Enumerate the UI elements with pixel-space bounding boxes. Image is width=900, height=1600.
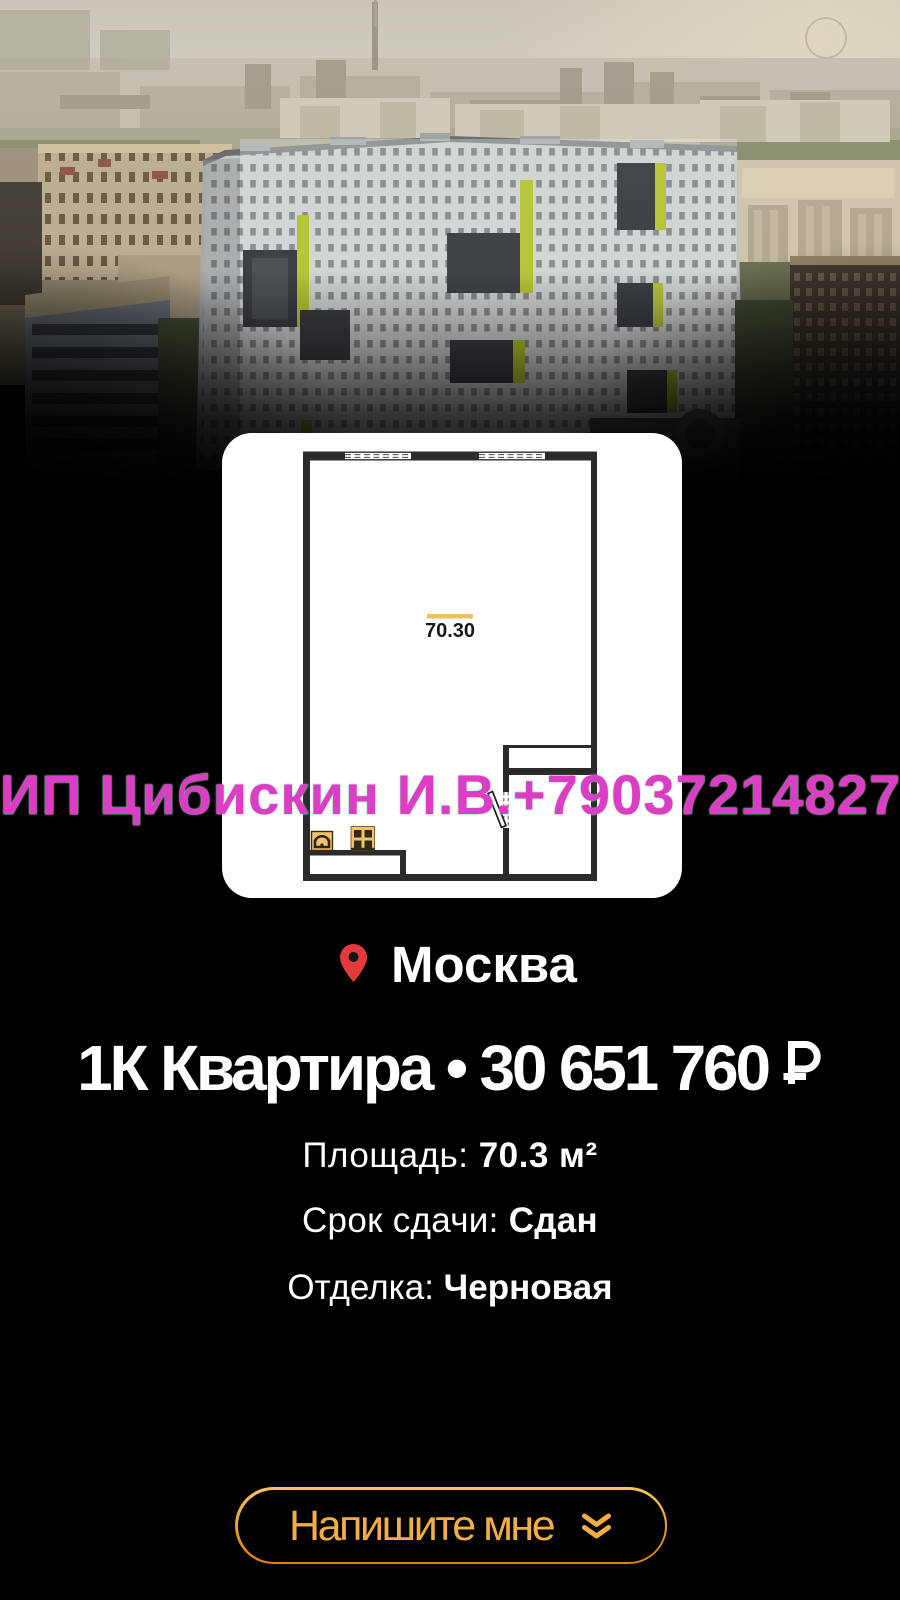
svg-text:70.30: 70.30 [425, 620, 475, 642]
